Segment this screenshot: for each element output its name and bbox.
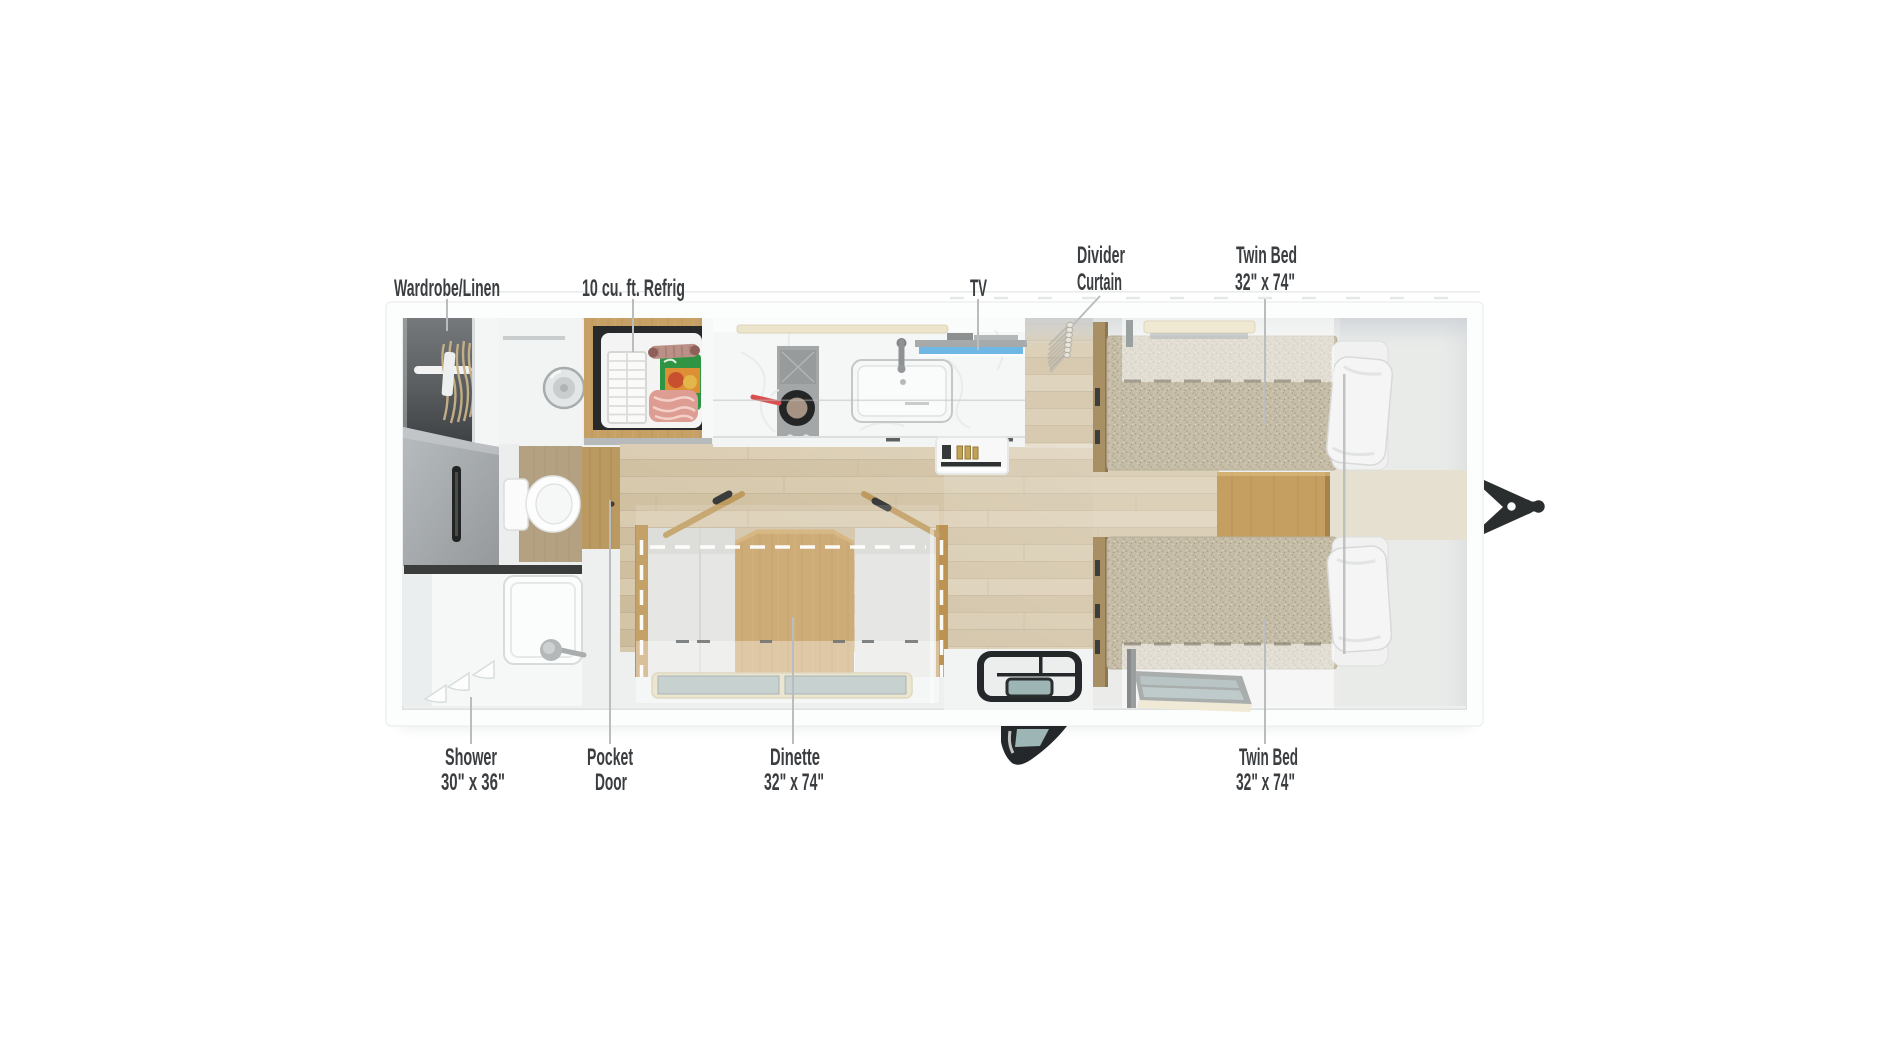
svg-text:Wardrobe/Linen: Wardrobe/Linen [394,275,500,302]
svg-text:Divider: Divider [1077,242,1125,269]
svg-text:Curtain: Curtain [1077,269,1122,296]
svg-text:32" x 74": 32" x 74" [1236,769,1295,796]
svg-text:30" x 36": 30" x 36" [441,769,505,796]
svg-text:Twin Bed: Twin Bed [1239,744,1298,771]
svg-text:Door: Door [595,769,627,796]
svg-text:32" x 74": 32" x 74" [1235,269,1295,296]
svg-text:Twin Bed: Twin Bed [1236,242,1297,269]
svg-text:32" x 74": 32" x 74" [764,769,824,796]
svg-text:Pocket: Pocket [587,744,633,771]
svg-text:10 cu. ft. Refrig: 10 cu. ft. Refrig [582,275,685,302]
svg-text:TV: TV [970,275,987,302]
svg-text:Dinette: Dinette [770,744,820,771]
svg-text:Shower: Shower [445,744,497,771]
